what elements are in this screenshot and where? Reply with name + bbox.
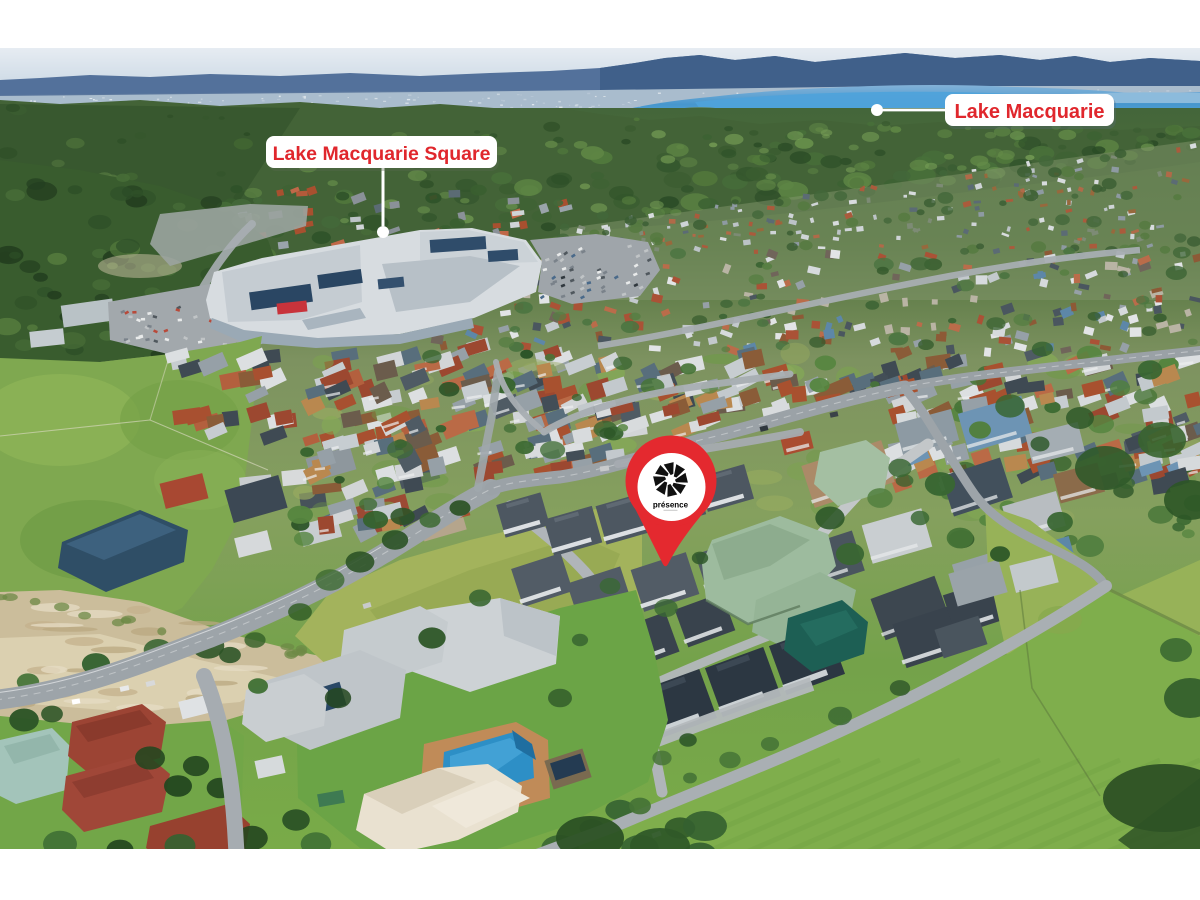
svg-text:Lake Macquarie Square: Lake Macquarie Square <box>273 143 491 165</box>
svg-text:Lake Macquarie: Lake Macquarie <box>954 101 1104 123</box>
svg-text:présence: présence <box>653 501 689 510</box>
